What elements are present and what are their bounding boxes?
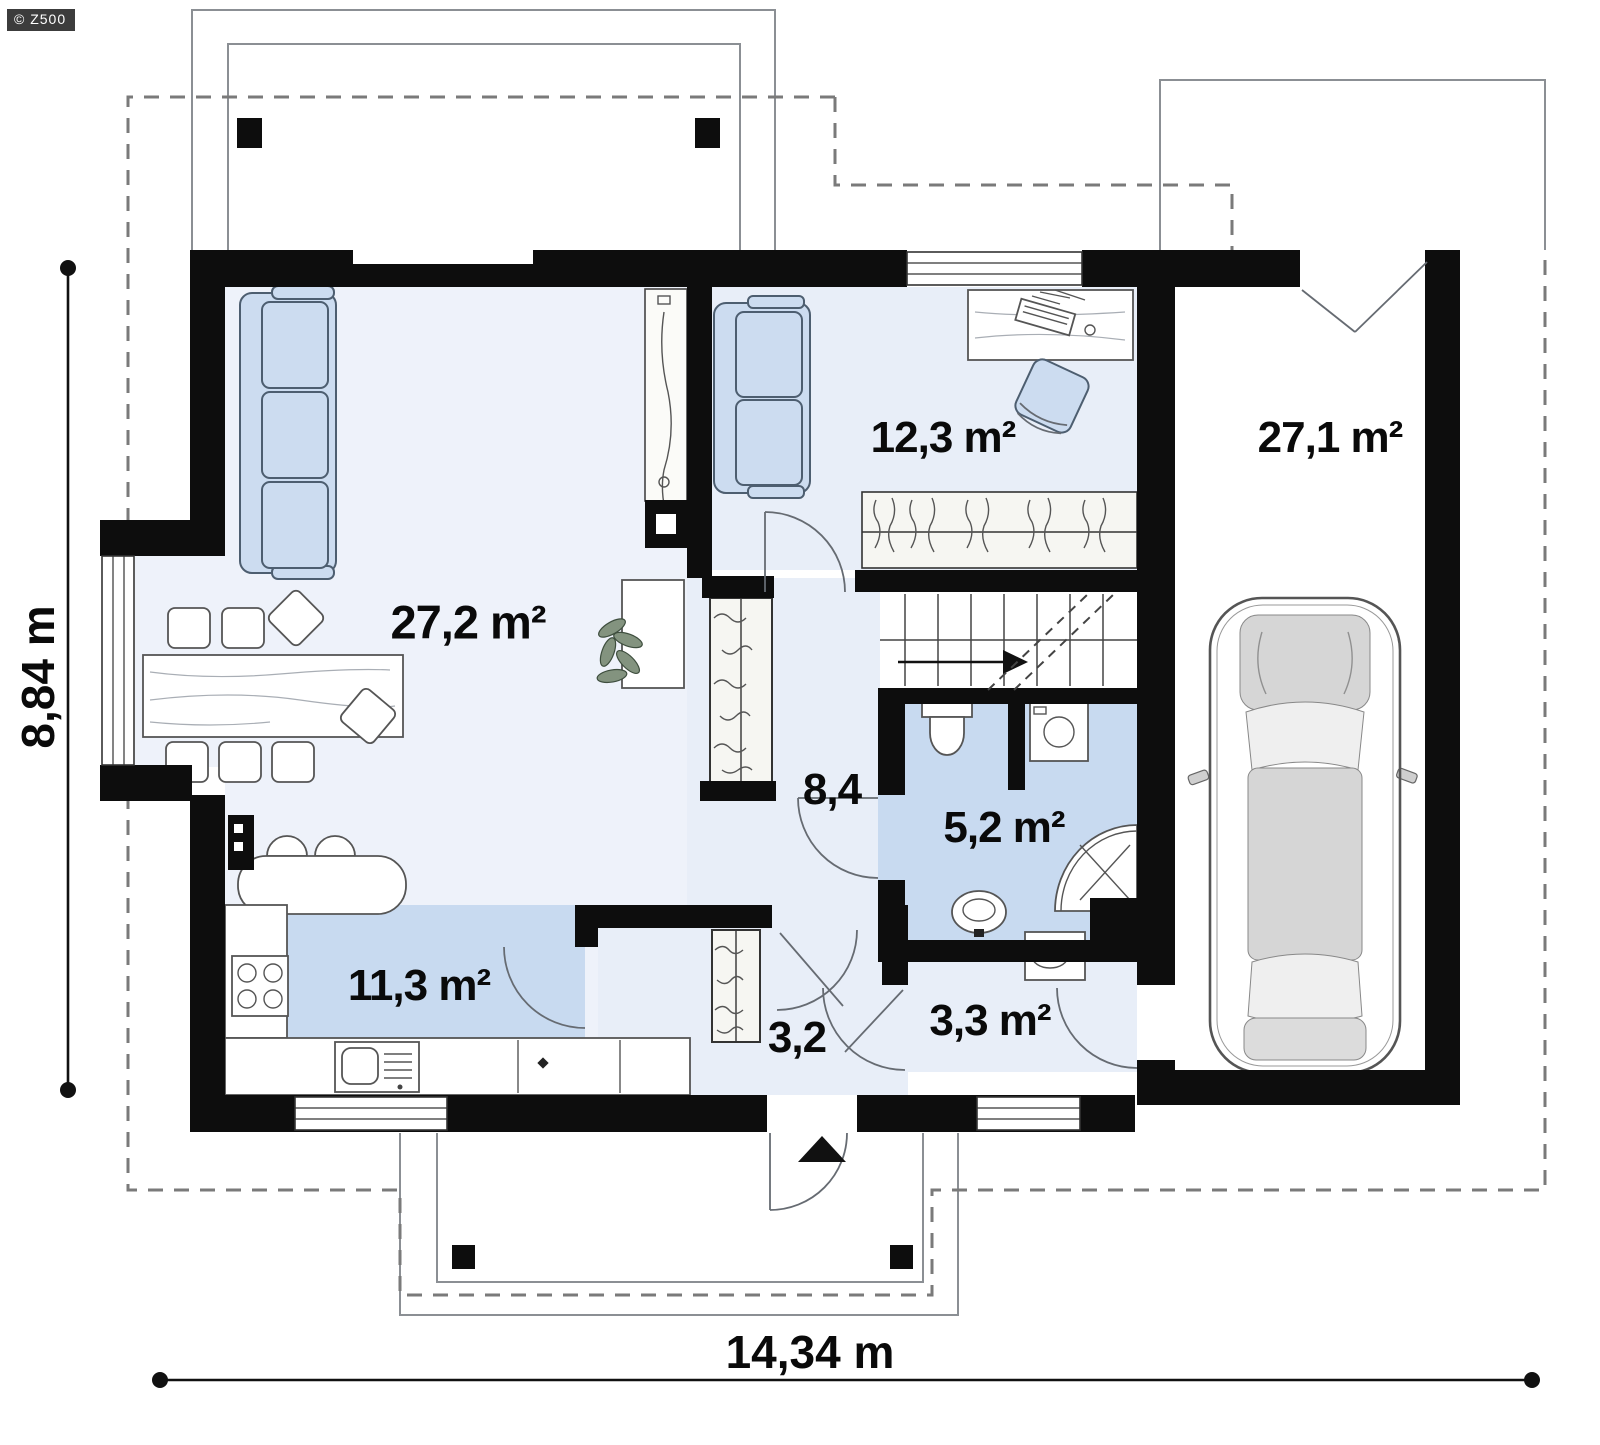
brand-watermark: © Z500 [7,9,75,31]
vestibule-closet [712,930,760,1042]
room-label-living: 27,2 m² [391,595,546,650]
entrance-porch [400,1133,958,1315]
office-window [907,252,1082,285]
room-label-garage: 27,1 m² [1258,413,1403,463]
terrace-column [237,118,262,148]
porch-column [452,1245,475,1269]
stove [232,956,288,1016]
room-label-kitchen: 11,3 m² [348,961,490,1011]
kitchen-window [295,1097,447,1130]
sofa-three-seat [240,286,336,579]
floor-plan-page: © Z500 27,2 m² 12,3 m² 27,1 m² 8,4 5,2 m… [0,0,1600,1445]
terrace-column [695,118,720,148]
driveway [1160,80,1545,250]
terrace [192,10,775,250]
room-label-office: 12,3 m² [871,413,1016,463]
wardrobe [862,492,1137,568]
washing-machine [1030,703,1088,761]
dimension-height-label: 8,84 m [11,605,65,748]
floor-plan-drawing [0,0,1600,1445]
entrance-arrow [798,1136,846,1162]
room-label-bathroom: 5,2 m² [943,803,1064,853]
hall-closet [710,598,772,783]
fireplace [645,500,687,548]
kitchen-sink [335,1042,419,1092]
desk [968,290,1133,360]
vestibule-window [977,1097,1080,1130]
entrance-opening [767,1095,857,1132]
bay-window [102,556,134,765]
entrance-door [770,1133,847,1210]
chimney [645,289,687,514]
dimension-width-label: 14,34 m [726,1325,895,1379]
sofa-two-seat [714,296,810,498]
room-label-storage: 3,3 m² [929,996,1050,1046]
porch-column [890,1245,913,1269]
room-label-hall: 8,4 [803,765,861,815]
room-label-vestibule: 3,2 [768,1013,826,1063]
